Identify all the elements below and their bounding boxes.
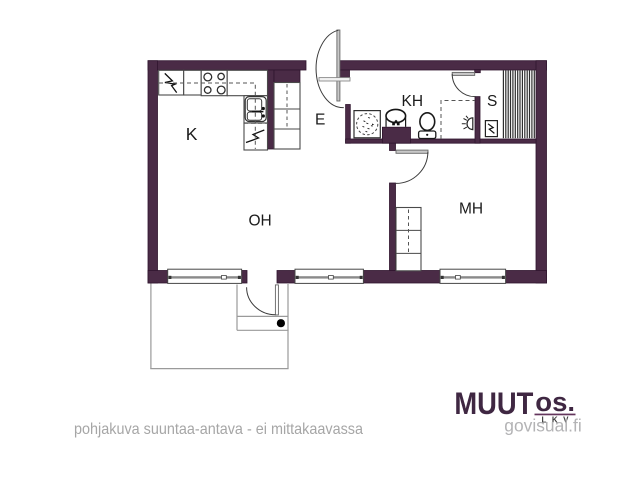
- svg-text:pohjakuva suuntaa-antava - ei: pohjakuva suuntaa-antava - ei mittakaava…: [74, 421, 363, 438]
- svg-text:S: S: [487, 93, 497, 110]
- svg-text:MH: MH: [459, 201, 483, 218]
- svg-text:os.: os.: [535, 387, 575, 417]
- svg-text:K: K: [186, 124, 198, 144]
- svg-text:E: E: [315, 112, 325, 129]
- svg-text:govisual.fi: govisual.fi: [504, 416, 581, 436]
- svg-text:OH: OH: [249, 213, 272, 230]
- svg-text:KH: KH: [402, 93, 424, 110]
